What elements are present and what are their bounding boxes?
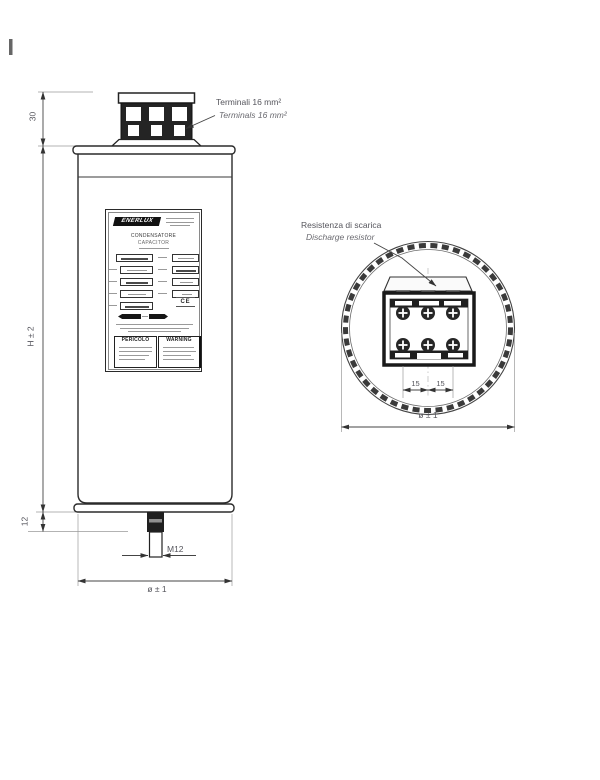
side-diameter-label: ø ± 1 bbox=[125, 584, 189, 595]
logo-side-text-bar bbox=[166, 218, 194, 219]
terminal-block-top bbox=[384, 293, 474, 365]
ce-mark: CE bbox=[172, 295, 199, 309]
terminal-base bbox=[112, 140, 201, 147]
pitch-right-label: 15 bbox=[430, 378, 451, 389]
field-box bbox=[120, 302, 153, 310]
terminal-window bbox=[149, 107, 164, 121]
field-box bbox=[120, 278, 153, 286]
approval-mark-right bbox=[149, 314, 168, 319]
terminal-screw-hole bbox=[128, 125, 139, 136]
stud-thread-label: M12 bbox=[167, 544, 184, 555]
field-box bbox=[120, 266, 153, 274]
discharge-note-line1: Resistenza di scarica bbox=[301, 220, 381, 231]
discharge-note-line2: Discharge resistor bbox=[306, 232, 375, 243]
field-box bbox=[116, 254, 153, 262]
terminal-screw-hole bbox=[174, 125, 185, 136]
danger-title-it: PERICOLO bbox=[115, 337, 156, 344]
nameplate: ENERLUX CONDENSATORE CAPACITOR CE PERICO… bbox=[105, 209, 202, 372]
danger-box-it: PERICOLO bbox=[114, 336, 157, 368]
linework-layer bbox=[0, 0, 600, 780]
can-top-rim bbox=[73, 146, 235, 154]
terminal-note-line2: Terminals 16 mm² bbox=[219, 110, 287, 121]
field-box bbox=[172, 278, 199, 286]
dim-body-height-label: H ± 2 bbox=[26, 319, 37, 355]
top-diameter-label: ø ± 1 bbox=[396, 410, 460, 421]
terminal-note-line1: Terminali 16 mm² bbox=[216, 97, 281, 108]
ce-text: CE bbox=[181, 299, 191, 305]
field-box bbox=[172, 266, 199, 274]
nameplate-title-it: CONDENSATORE bbox=[106, 233, 201, 239]
field-box bbox=[120, 290, 153, 298]
can-bottom-rim bbox=[74, 504, 234, 512]
terminal-window bbox=[126, 107, 141, 121]
terminal-screw-hole bbox=[151, 125, 162, 136]
bottom-stud bbox=[147, 512, 164, 557]
approval-mark-left bbox=[118, 314, 141, 319]
danger-title-en: WARNING bbox=[159, 337, 199, 344]
capacitor-drawing: 30 H ± 2 12 M12 ø ± 1 Terminali 16 mm² T… bbox=[0, 0, 600, 780]
dim-terminal-height-label: 30 bbox=[28, 105, 39, 129]
field-box bbox=[172, 254, 199, 262]
terminal-block-side bbox=[112, 93, 201, 146]
stud-m12 bbox=[150, 532, 163, 557]
dim-stud-label: 12 bbox=[20, 510, 31, 534]
top-view bbox=[342, 242, 515, 433]
frame-mark bbox=[9, 39, 13, 55]
nameplate-title-en: CAPACITOR bbox=[106, 240, 201, 246]
brand-logo: ENERLUX bbox=[113, 217, 161, 226]
danger-box-en: WARNING bbox=[158, 336, 201, 368]
pitch-left-label: 15 bbox=[405, 378, 426, 389]
terminal-window bbox=[172, 107, 187, 121]
